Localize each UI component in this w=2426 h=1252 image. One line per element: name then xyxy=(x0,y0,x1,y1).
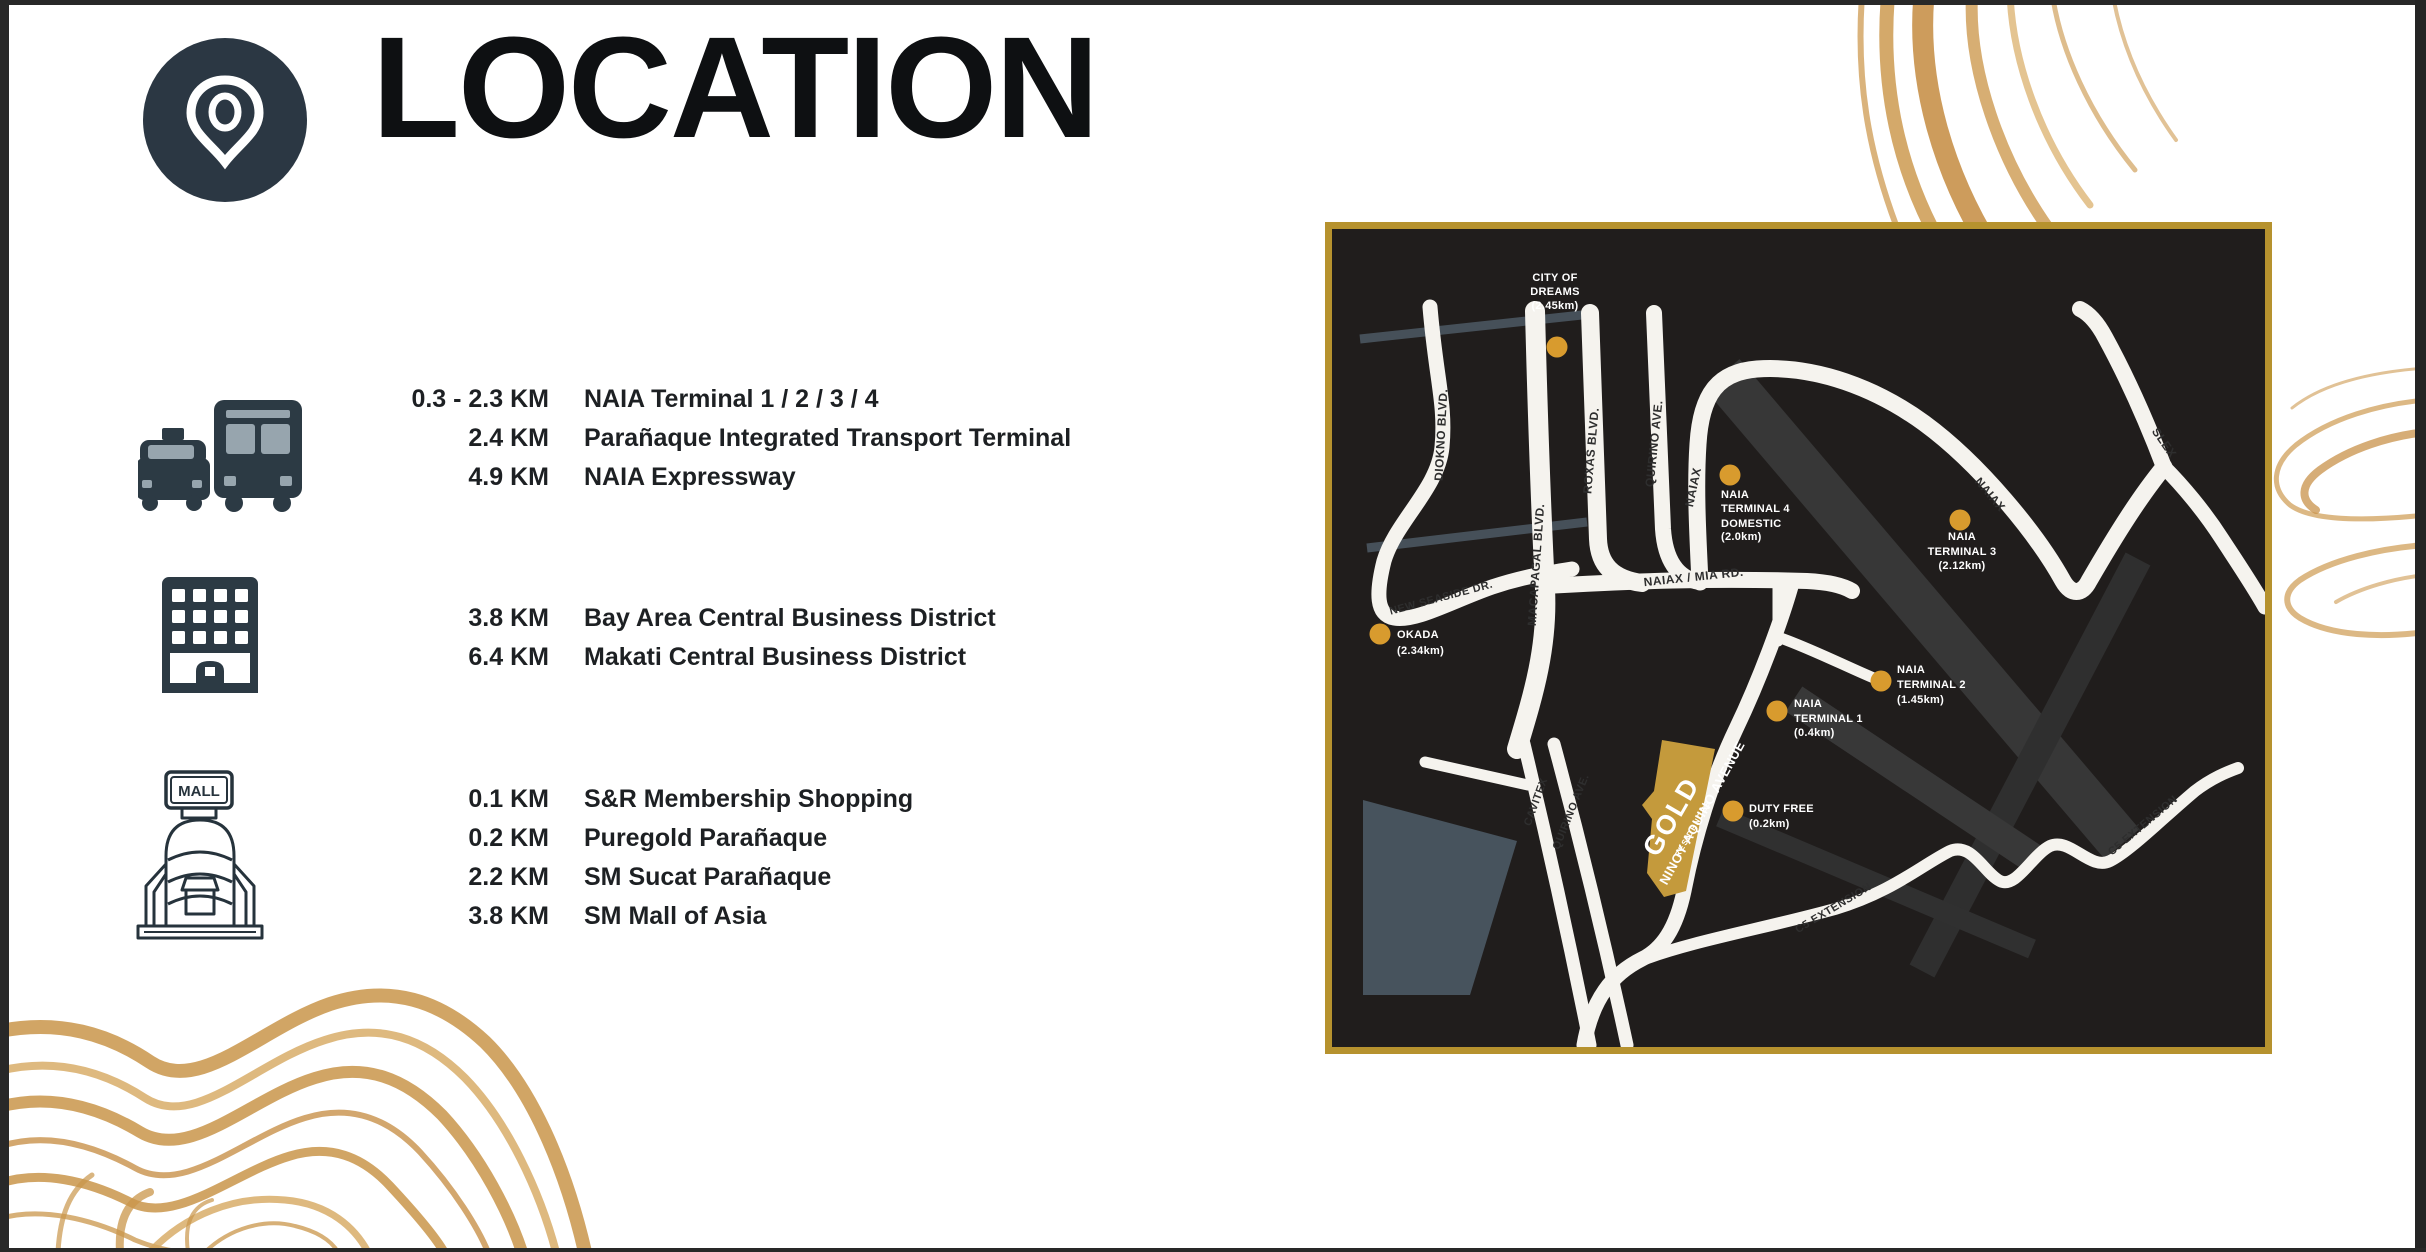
dot-naia-terminal-4 xyxy=(1720,465,1741,486)
landmark-label: (1.45km) xyxy=(1897,694,1944,706)
page-title: LOCATION xyxy=(372,16,1097,160)
road-slex xyxy=(2080,309,2164,467)
distance-row: 4.9 KM NAIA Expressway xyxy=(380,458,1071,497)
distance-row: 6.4 KM Makati Central Business District xyxy=(380,638,996,677)
distance-row: 0.1 KM S&R Membership Shopping xyxy=(380,780,913,819)
landmark-label: (0.2km) xyxy=(1749,818,1790,830)
landmark-label: NAIA xyxy=(1948,531,1976,543)
place-name: SM Sucat Parañaque xyxy=(584,863,831,892)
dot-naia-terminal-3 xyxy=(1950,510,1971,531)
distance-value: 0.2 KM xyxy=(380,824,549,853)
location-pin-icon xyxy=(143,38,307,202)
dot-naia-terminal-1 xyxy=(1767,701,1788,722)
landmark-label: (2.12km) xyxy=(1938,560,1985,572)
dot-city-of-dreams xyxy=(1547,337,1568,358)
edge-bar-top xyxy=(0,0,2426,5)
place-name: S&R Membership Shopping xyxy=(584,785,913,814)
landmark-label: (2.34km) xyxy=(1397,645,1444,657)
slide: { "title": "LOCATION", "groups": [ { "ic… xyxy=(0,0,2426,1252)
edge-bar-left xyxy=(0,0,9,1252)
landmark-label: DUTY FREE xyxy=(1749,803,1814,815)
landmark-label: CITY OF xyxy=(1532,272,1577,284)
landmark-label: OKADA xyxy=(1397,629,1439,641)
place-name: Bay Area Central Business District xyxy=(584,604,996,633)
swirl-top-right xyxy=(1860,0,2176,248)
distance-value: 0.3 - 2.3 KM xyxy=(380,385,549,414)
road-label-c5-center: C5 EXTENSION xyxy=(1793,881,1873,936)
landmark-label: NAIA xyxy=(1897,664,1925,676)
place-name: Makati Central Business District xyxy=(584,643,966,672)
place-name: Parañaque Integrated Transport Terminal xyxy=(584,424,1071,453)
distance-value: 3.8 KM xyxy=(380,604,549,633)
distance-row: 0.2 KM Puregold Parañaque xyxy=(380,819,913,858)
landmark-label: (2.0km) xyxy=(1721,531,1762,543)
edge-bar-bottom xyxy=(0,1248,2426,1252)
distance-row: 3.8 KM Bay Area Central Business Distric… xyxy=(380,599,996,638)
landmark-label: TERMINAL 1 xyxy=(1794,713,1863,725)
taxi-bus-icon xyxy=(138,392,303,514)
mall-sign-text: MALL xyxy=(178,783,220,800)
dot-okada xyxy=(1370,624,1391,645)
landmark-label: DOMESTIC xyxy=(1721,518,1781,530)
swirl-right-edge xyxy=(2276,368,2426,635)
landmark-label: NAIA xyxy=(1794,698,1822,710)
place-name: SM Mall of Asia xyxy=(584,902,766,931)
distance-row: 2.2 KM SM Sucat Parañaque xyxy=(380,858,913,897)
landmark-label: TERMINAL 3 xyxy=(1928,546,1997,558)
distance-value: 4.9 KM xyxy=(380,463,549,492)
distance-value: 2.4 KM xyxy=(380,424,549,453)
distance-value: 6.4 KM xyxy=(380,643,549,672)
landmark-label: NAIA xyxy=(1721,489,1749,501)
vicinity-map: GOLD RESIDENCES DIOKNO BLVD. MACAPAGAL B… xyxy=(1325,222,2272,1054)
edge-bar-right xyxy=(2415,0,2426,1252)
shopping-mall-icon: MALL xyxy=(136,770,264,950)
dot-duty-free xyxy=(1723,801,1744,822)
landmark-label: (0.4km) xyxy=(1794,727,1835,739)
landmark-label: TERMINAL 4 xyxy=(1721,503,1790,515)
map-runways xyxy=(1720,374,2138,971)
distance-value: 2.2 KM xyxy=(380,863,549,892)
distance-value: 3.8 KM xyxy=(380,902,549,931)
distance-row: 0.3 - 2.3 KM NAIA Terminal 1 / 2 / 3 / 4 xyxy=(380,380,1071,419)
map-roads xyxy=(1379,307,2265,1045)
distance-value: 0.1 KM xyxy=(380,785,549,814)
office-building-icon xyxy=(162,577,258,701)
distance-row: 3.8 KM SM Mall of Asia xyxy=(380,897,913,936)
road-junction-stub xyxy=(1425,762,1528,785)
landmark-label: TERMINAL 2 xyxy=(1897,679,1966,691)
landmark-label: (2.45km) xyxy=(1531,300,1578,312)
landmark-label: DREAMS xyxy=(1530,286,1579,298)
road-terminal2-stub xyxy=(1778,637,1876,679)
place-name: Puregold Parañaque xyxy=(584,824,827,853)
road-slex-branch xyxy=(2164,467,2265,607)
swirl-bottom-left xyxy=(0,995,585,1252)
place-name: NAIA Terminal 1 / 2 / 3 / 4 xyxy=(584,385,879,414)
dot-naia-terminal-2 xyxy=(1871,671,1892,692)
place-name: NAIA Expressway xyxy=(584,463,796,492)
distance-row: 2.4 KM Parañaque Integrated Transport Te… xyxy=(380,419,1071,458)
